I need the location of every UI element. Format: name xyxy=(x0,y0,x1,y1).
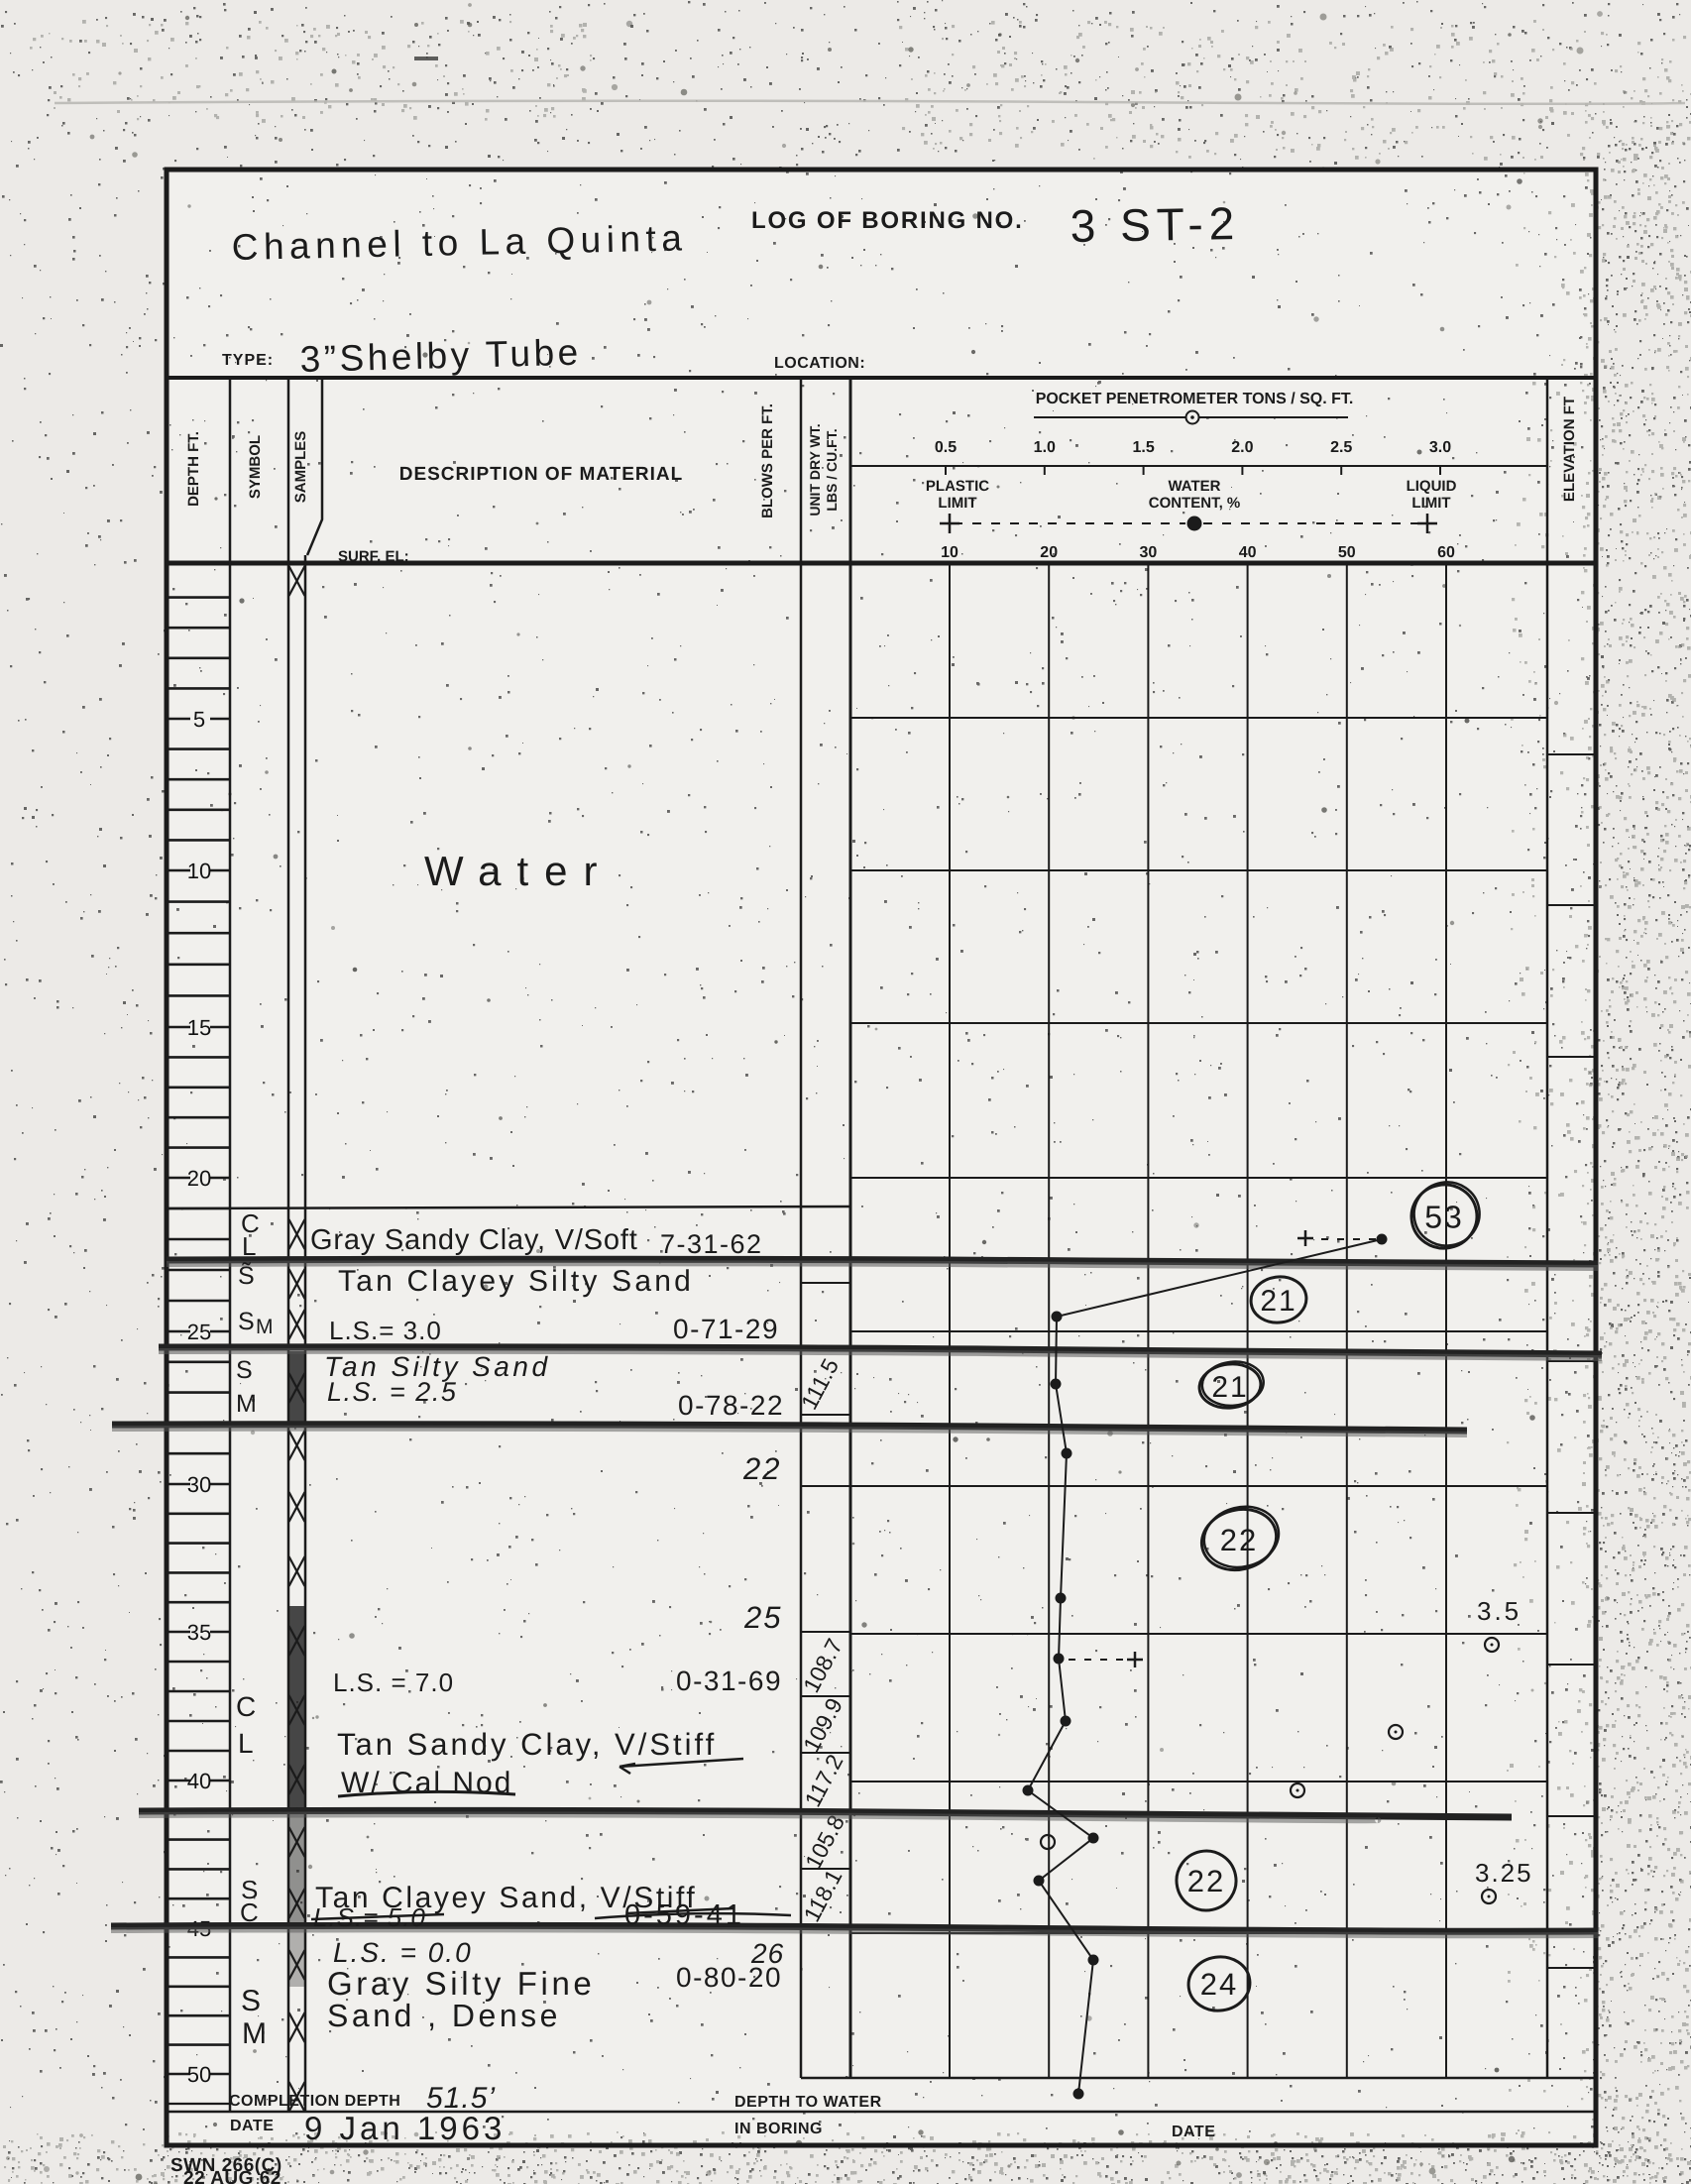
svg-text:30: 30 xyxy=(1140,544,1158,561)
svg-text:10: 10 xyxy=(187,859,211,883)
svg-text:20: 20 xyxy=(1040,544,1058,561)
svg-text:22: 22 xyxy=(1220,1523,1258,1557)
svg-text:25: 25 xyxy=(187,1320,211,1344)
svg-text:53: 53 xyxy=(1424,1200,1464,1235)
svg-text:L.S. = 0.0: L.S. = 0.0 xyxy=(333,1937,473,1968)
svg-text:S̃: S̃ xyxy=(238,1262,255,1290)
svg-text:0-71-29: 0-71-29 xyxy=(673,1314,779,1344)
svg-text:L.S.= 3.0: L.S.= 3.0 xyxy=(329,1316,442,1345)
svg-text:50: 50 xyxy=(187,2062,211,2087)
svg-text:3.0: 3.0 xyxy=(1429,439,1451,456)
svg-text:3”Shelby Tube: 3”Shelby Tube xyxy=(299,332,582,380)
svg-text:M: M xyxy=(236,1390,257,1418)
svg-text:24: 24 xyxy=(1200,1967,1238,2002)
svg-text:COMPLETION DEPTH: COMPLETION DEPTH xyxy=(229,2093,400,2110)
svg-text:30: 30 xyxy=(187,1472,211,1497)
svg-text:DEPTH FT.: DEPTH FT. xyxy=(185,431,202,507)
svg-text:3.25: 3.25 xyxy=(1475,1858,1533,1888)
svg-text:40: 40 xyxy=(1239,544,1257,561)
svg-text:POCKET PENETROMETER TONS / S: POCKET PENETROMETER TONS / SQ. FT. xyxy=(1036,391,1354,407)
svg-text:20: 20 xyxy=(187,1166,211,1191)
svg-text:22: 22 xyxy=(1187,1864,1225,1898)
svg-text:L: L xyxy=(242,1231,256,1261)
svg-text:LOCATION:: LOCATION: xyxy=(774,355,865,372)
svg-text:LBS / CU.FT.: LBS / CU.FT. xyxy=(824,428,840,511)
svg-text:M: M xyxy=(242,2017,267,2050)
svg-text:21: 21 xyxy=(1211,1371,1248,1404)
svg-text:3.5: 3.5 xyxy=(1477,1596,1522,1626)
svg-text:DATE: DATE xyxy=(1172,2124,1215,2140)
svg-text:Tan Sandy Clay, V/Stiff: Tan Sandy Clay, V/Stiff xyxy=(337,1727,717,1762)
svg-text:L.S. = 2.5: L.S. = 2.5 xyxy=(327,1377,457,1407)
svg-text:S: S xyxy=(241,1985,261,2017)
svg-text:L: L xyxy=(238,1728,254,1759)
svg-text:25: 25 xyxy=(743,1600,782,1635)
svg-text:2.5: 2.5 xyxy=(1330,439,1352,456)
svg-text:M: M xyxy=(256,1316,274,1338)
svg-text:Water: Water xyxy=(424,848,613,894)
svg-text:WATER: WATER xyxy=(1168,478,1220,495)
svg-text:ELEVATION FT: ELEVATION FT xyxy=(1561,397,1578,502)
svg-text:SAMPLES: SAMPLES xyxy=(292,431,309,504)
svg-text:3 ST-2: 3 ST-2 xyxy=(1070,197,1240,252)
svg-text:LIMIT: LIMIT xyxy=(938,495,976,512)
svg-text:40: 40 xyxy=(187,1769,211,1793)
svg-text:21: 21 xyxy=(1260,1285,1296,1318)
svg-text:10: 10 xyxy=(941,544,958,561)
svg-text:22: 22 xyxy=(742,1451,781,1486)
svg-text:0.5: 0.5 xyxy=(935,439,957,456)
svg-text:1.5: 1.5 xyxy=(1132,439,1154,456)
svg-text:TYPE:: TYPE: xyxy=(222,352,274,369)
svg-text:C: C xyxy=(240,1897,259,1927)
svg-text:PLASTIC: PLASTIC xyxy=(926,478,989,495)
svg-text:C: C xyxy=(236,1691,256,1722)
svg-text:2.0: 2.0 xyxy=(1231,439,1253,456)
svg-text:CONTENT, %: CONTENT, % xyxy=(1149,495,1241,512)
svg-text:60: 60 xyxy=(1437,544,1455,561)
svg-text:BLOWS PER FT.: BLOWS PER FT. xyxy=(759,403,776,518)
svg-text:SURF. EL:: SURF. EL: xyxy=(338,548,409,565)
svg-text:S: S xyxy=(238,1308,255,1335)
svg-text:SYMBOL: SYMBOL xyxy=(247,435,264,499)
svg-text:S: S xyxy=(236,1356,253,1384)
svg-text:15: 15 xyxy=(187,1015,211,1040)
svg-text:35: 35 xyxy=(187,1620,211,1645)
svg-text:22 AUG 62: 22 AUG 62 xyxy=(183,2168,282,2184)
svg-text:Tan Clayey Silty Sand: Tan Clayey Silty Sand xyxy=(338,1265,694,1298)
svg-text:IN BORING: IN BORING xyxy=(734,2121,823,2137)
svg-text:Sand , Dense: Sand , Dense xyxy=(327,1998,561,2033)
svg-text:Gray Silty Fine: Gray Silty Fine xyxy=(327,1965,595,2002)
svg-text:50: 50 xyxy=(1338,544,1356,561)
svg-text:1.0: 1.0 xyxy=(1034,439,1056,456)
svg-text:LIMIT: LIMIT xyxy=(1411,495,1450,512)
svg-text:L.S. = 7.0: L.S. = 7.0 xyxy=(333,1667,454,1697)
svg-text:DEPTH TO WATER: DEPTH TO WATER xyxy=(734,2094,882,2111)
svg-text:LIQUID: LIQUID xyxy=(1407,478,1457,495)
svg-text:DESCRIPTION OF MATERIAL: DESCRIPTION OF MATERIAL xyxy=(399,464,684,485)
svg-text:0-80-20: 0-80-20 xyxy=(676,1962,782,1993)
svg-text:7-31-62: 7-31-62 xyxy=(660,1229,763,1259)
svg-text:UNIT DRY WT.: UNIT DRY WT. xyxy=(807,423,823,516)
svg-text:LOG OF BORING NO.: LOG OF BORING NO. xyxy=(751,207,1024,234)
svg-text:9 Jan 1963: 9 Jan 1963 xyxy=(304,2110,506,2146)
svg-text:Gray Sandy Clay, V/Soft: Gray Sandy Clay, V/Soft xyxy=(310,1224,638,1256)
svg-text:DATE: DATE xyxy=(230,2118,274,2134)
svg-text:5: 5 xyxy=(193,707,205,732)
svg-text:0-78-22: 0-78-22 xyxy=(678,1390,784,1421)
svg-text:0-31-69: 0-31-69 xyxy=(676,1666,782,1696)
